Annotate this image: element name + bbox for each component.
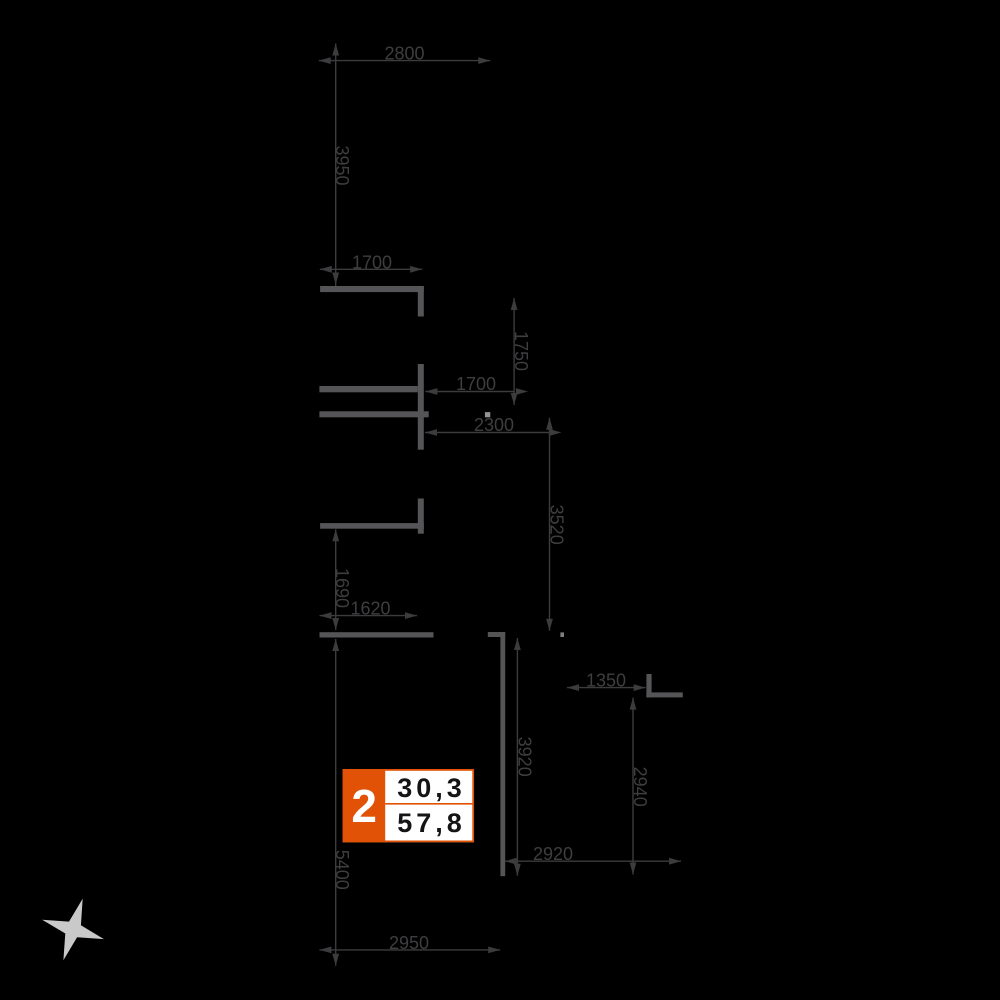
svg-text:1700: 1700: [352, 252, 392, 272]
svg-text:1690: 1690: [332, 568, 352, 608]
svg-text:57,8: 57,8: [397, 808, 466, 838]
svg-text:3520: 3520: [546, 505, 566, 545]
svg-text:2920: 2920: [533, 844, 573, 864]
svg-text:2940: 2940: [630, 767, 650, 807]
svg-text:1350: 1350: [586, 670, 626, 690]
svg-text:1620: 1620: [350, 599, 390, 619]
svg-text:2: 2: [351, 780, 377, 832]
svg-text:3950: 3950: [332, 145, 352, 185]
svg-text:2300: 2300: [474, 415, 514, 435]
svg-text:2800: 2800: [384, 44, 424, 64]
svg-text:30,3: 30,3: [397, 773, 466, 803]
svg-text:1700: 1700: [456, 374, 496, 394]
svg-text:1750: 1750: [511, 331, 531, 371]
svg-text:2950: 2950: [389, 933, 429, 953]
svg-text:5400: 5400: [332, 850, 352, 890]
svg-text:3920: 3920: [514, 737, 534, 777]
